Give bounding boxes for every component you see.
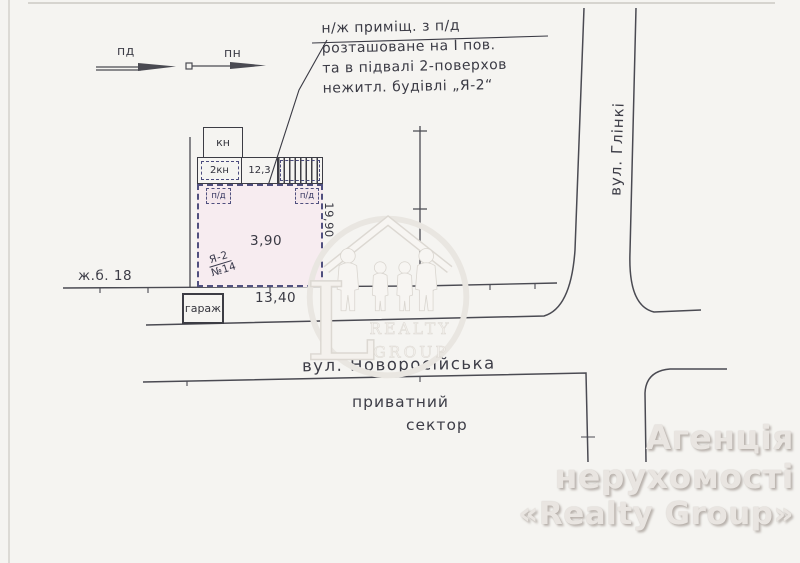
basement-entry-left: п/д	[206, 188, 231, 204]
street-name-novorosiiska: вул. Новоросійська	[302, 354, 496, 376]
strip-area-cell: 12,3	[242, 158, 278, 183]
agency-line2: нерухомості	[518, 458, 794, 497]
agency-line3: «Realty Group»	[518, 496, 794, 532]
scan-edge	[8, 0, 10, 563]
dimension-390: 3,90	[250, 233, 282, 249]
stairs-hatch	[278, 158, 322, 183]
south-arrow-icon	[96, 63, 176, 71]
private-sector-line2: сектор	[406, 416, 468, 434]
north-arrow-icon	[186, 62, 266, 69]
strip-2kn-cell: 2кн	[198, 158, 242, 183]
garage-label: гараж	[185, 302, 221, 315]
annotation-line: нежитл. будівлі „Я-2“	[322, 73, 582, 98]
street-vertical-east-edge	[630, 8, 701, 312]
strip-2kn-label: 2кн	[210, 165, 229, 176]
plot-east-boundary	[413, 126, 427, 286]
scanned-site-plan: пд пн н/ж приміщ. з п/д розташоване на І…	[0, 0, 800, 563]
agency-line1: Агенція	[518, 419, 794, 458]
pd-label: п/д	[300, 191, 314, 201]
basement-entry-right: п/д	[295, 188, 319, 204]
logo-word-realty: REALTY	[369, 319, 451, 338]
family-silhouette-icon	[337, 249, 437, 311]
dimension-1990: 19,90	[322, 187, 336, 253]
garage-box: гараж	[182, 293, 224, 324]
kn-label: кн	[216, 136, 230, 149]
building-strip: 2кн 12,3	[197, 157, 323, 184]
strip-area-label: 12,3	[248, 165, 270, 176]
pd-label: п/д	[211, 191, 225, 201]
private-sector-line1: приватний	[352, 393, 449, 411]
handwritten-annotation: н/ж приміщ. з п/д розташоване на І пов. …	[321, 13, 583, 98]
logo-roof-outline-icon	[326, 221, 449, 270]
dimension-1340: 13,40	[255, 290, 296, 306]
kn-outbuilding: кн	[203, 127, 243, 158]
neighbor-building-label: ж.б. 18	[78, 268, 132, 284]
compass-north-label: пн	[224, 45, 241, 60]
street-name-hlinki: вул. Глінкі	[606, 89, 628, 210]
compass-south-label: пд	[117, 43, 135, 58]
agency-watermark: Агенція нерухомості «Realty Group»	[518, 419, 794, 532]
